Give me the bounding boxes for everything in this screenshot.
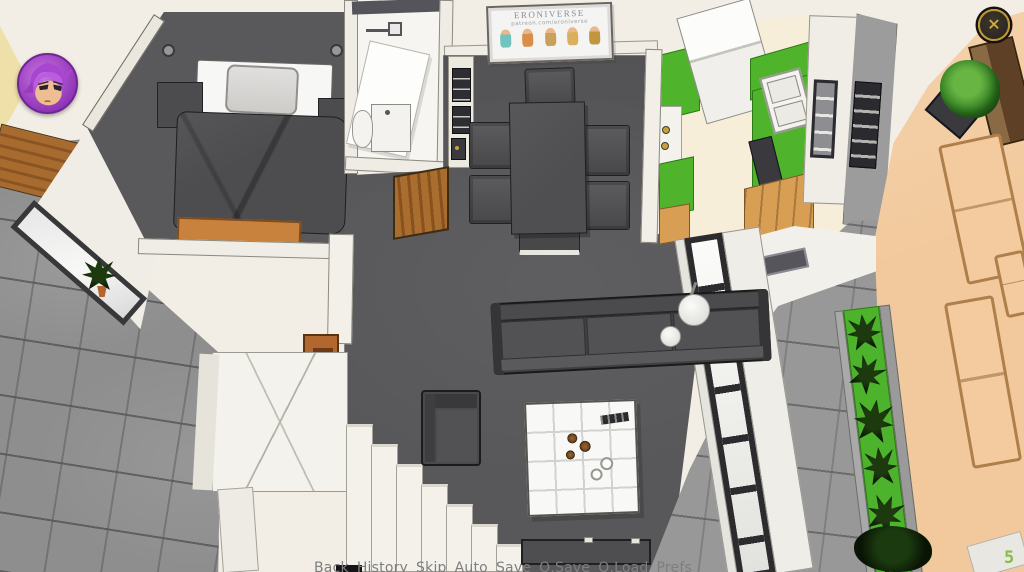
apartment-scene: ERONIVERSE patreon.com/eroniverse [0,0,1024,572]
tv-console-foot [584,537,593,543]
poster-figure [500,29,512,47]
close-icon: ✕ [987,17,1000,33]
tv-console-foot [631,538,640,544]
coaster [579,441,590,452]
coaster [566,450,575,459]
coffee-table [524,399,640,517]
poster-figure [567,27,579,45]
wall-lamp-icon [162,44,175,57]
quick-menu-bar: Back History Skip Auto Save Q.Save Q.Loa… [314,560,692,572]
menu-qsave[interactable]: Q.Save [539,560,590,572]
shower-head-icon [388,22,402,36]
wall-shelf-unit [452,68,471,102]
poster-figures [495,26,606,48]
corner-bush [854,526,932,572]
stove-knob-icon [661,142,669,150]
character-portrait-icon [19,55,76,112]
wooden-door [393,166,449,240]
dining-chair [583,125,630,176]
sofa-cushion [499,317,586,359]
stair-landing [212,352,348,492]
menu-skip[interactable]: Skip [416,560,447,572]
stove-knob-icon [662,126,670,134]
menu-history[interactable]: History [357,560,408,572]
poster-figure [589,26,601,44]
stairwell-wall [327,234,354,344]
menu-qload[interactable]: Q.Load [598,560,648,572]
character-avatar-button[interactable] [17,53,78,114]
dining-chair [583,181,630,230]
wall-lamp-icon [330,44,343,57]
menu-back[interactable]: Back [314,560,349,572]
armchair [421,390,481,466]
stair-step [346,424,373,572]
menu-auto[interactable]: Auto [455,560,488,572]
fps-counter: 5 [1004,548,1014,568]
sofa [490,289,771,375]
bed-blanket [173,111,349,235]
terrace-bush [940,60,1000,118]
sink-basin [767,75,802,104]
coaster [567,433,577,443]
armchair-arm [425,394,435,462]
menu-prefs[interactable]: Prefs [657,560,692,572]
floor-lamp-shade [678,294,710,326]
bathroom-sink [371,104,411,152]
menu-save[interactable]: Save [496,560,531,572]
stair-side-wall [217,487,259,572]
eroniverse-poster: ERONIVERSE patreon.com/eroniverse [486,2,614,64]
sink-basin [773,100,807,127]
cup [600,457,613,470]
remote-control [600,412,629,425]
shower-arm [366,29,390,32]
sink-faucet [385,110,390,115]
coffee-machine-light [455,146,459,150]
poster-figure [544,28,556,46]
poster-figure [522,28,534,46]
armchair-seat [437,410,477,462]
floor-lamp-shade [660,326,681,347]
cup [590,468,602,480]
stair-step [371,444,398,572]
toilet [352,110,373,148]
game-viewport: ERONIVERSE patreon.com/eroniverse [0,0,1024,572]
bedroom-bathroom-wall [344,0,358,174]
bed-pillow [225,64,299,116]
dining-table [509,101,587,234]
stair-step [421,484,448,572]
close-button[interactable]: ✕ [978,9,1010,41]
stair-step [396,464,423,572]
kitchen-window [810,79,838,158]
